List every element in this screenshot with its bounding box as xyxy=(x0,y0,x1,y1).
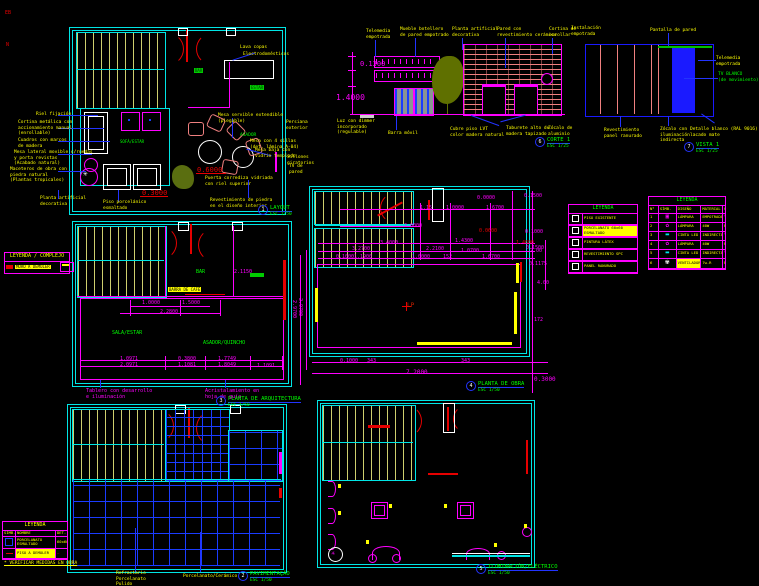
legend-row: 2 ✿ LÁMPARA 40W Pz xyxy=(649,223,725,232)
dimension-label: 4.00 xyxy=(537,280,549,286)
title-number-badge: 7 xyxy=(684,142,694,152)
door-frame xyxy=(226,28,236,36)
annotation-label: Taburete alto de madera tapizado xyxy=(506,126,549,137)
dimension-label: 1.0700 xyxy=(461,248,479,254)
annotation-label: Telemedia empotrada xyxy=(716,56,740,67)
symbol-icon: ✾ xyxy=(658,259,676,269)
title-scale: ESC 1/25 xyxy=(696,149,719,154)
annotation-label: Porcelanato/Cerámico xyxy=(183,574,237,580)
legend-row: 3 ▬ CINTA LED INDIRECTA ╲ xyxy=(649,232,725,241)
legend-label: PINTURA LÁTEX xyxy=(582,238,637,249)
legend-title: LEYENDA xyxy=(649,197,725,206)
annotation-label: Detalle blanco (RAL 9016) lacado mate xyxy=(690,127,758,138)
side-table xyxy=(121,112,140,131)
led-strip xyxy=(452,555,530,557)
panel-joint xyxy=(617,45,618,114)
leader-line xyxy=(415,38,416,57)
dimension-label: 2.00 xyxy=(530,248,542,254)
legend-title: LEYENDA xyxy=(3,522,67,531)
dimension-label: BAR xyxy=(196,269,205,275)
stool-seat xyxy=(137,168,157,186)
legend-label: MURO A DEMOLER xyxy=(15,265,51,270)
dim-line xyxy=(512,191,513,260)
dim-line xyxy=(130,300,131,316)
annotation-label: Cortina metálica con accionamiento manua… xyxy=(18,120,72,137)
dimension-label: 0.0000 xyxy=(477,195,495,201)
annotation-label: Lava copas xyxy=(240,45,267,51)
tree xyxy=(432,56,464,104)
panel-joint xyxy=(651,45,652,114)
annotation-label: Mesa servible extendible (plegable) xyxy=(218,113,283,124)
dimension-label: 2.0000 xyxy=(404,223,422,229)
legend-row: MURO A DEMOLER xyxy=(5,262,69,273)
floor-detail xyxy=(360,115,374,118)
annotation-label: Refractario Porcelanato Pulido xyxy=(116,571,146,586)
legend-small-table: LEYENDA PISO EXISTENTE PORCELANATO 60x60… xyxy=(568,204,638,274)
dimension-label: 1.8049 xyxy=(218,362,236,368)
wall-strip xyxy=(514,292,517,334)
dimension-label: 343 xyxy=(461,358,470,364)
legend-swatch xyxy=(3,537,15,549)
legend-swatch xyxy=(569,226,582,237)
switch-dot xyxy=(366,540,369,544)
counter xyxy=(224,60,274,79)
dimension-label: 0.3000 xyxy=(534,376,556,383)
green-marker xyxy=(250,273,264,277)
sconce-icon xyxy=(328,481,336,497)
dim-line xyxy=(80,356,81,370)
annotation-label: Cubre piso LVT color madera natural xyxy=(450,127,504,138)
door-frame xyxy=(432,188,444,222)
dim-line xyxy=(306,250,307,370)
title-scale: ESC 1/50 xyxy=(228,403,301,408)
bar-cabinet xyxy=(394,88,414,116)
annotation-label: Pared con revestimiento cerámico xyxy=(497,27,557,38)
dimension-label: 1.6700 xyxy=(486,205,504,211)
tv-panel xyxy=(672,48,695,113)
round-table xyxy=(198,140,222,164)
col-header: SÍMB. xyxy=(658,206,676,214)
dim-line xyxy=(420,203,421,260)
leader-line xyxy=(396,116,397,130)
switch-dot xyxy=(494,543,497,547)
annotation-label: Persiana exterior xyxy=(286,120,308,131)
legend-label: PISO EXISTENTE xyxy=(582,214,637,225)
annotation-label: Cuadros con marcos de madera xyxy=(18,138,67,149)
dimension-label: 0.1500 xyxy=(524,193,542,199)
inner-wall xyxy=(233,226,234,296)
title-scale: ESC 1/50 xyxy=(250,578,290,583)
symbol-icon: ▣ xyxy=(658,214,676,223)
dim-tick xyxy=(348,56,356,57)
dimension-label: 0.1175 xyxy=(529,261,547,267)
stair-landing-line xyxy=(323,442,413,443)
legend-row: PISO A DEMOLER — xyxy=(3,549,67,559)
speaker-arc-icon xyxy=(466,548,490,560)
symbol-icon: ▬ xyxy=(658,250,676,259)
tiled-area xyxy=(73,480,280,566)
door-leaf xyxy=(447,407,449,431)
leader-line xyxy=(668,33,669,46)
annotation-label: Barra móvil xyxy=(388,131,418,137)
floor-line xyxy=(72,479,281,480)
drawing-title-iluminacion: 5 ILUMINACIÓN/ELÉCTRICOESC 1/50 xyxy=(476,564,558,577)
legend-label: PORCELANATO 60x60 ESMALTADO xyxy=(582,226,637,237)
stair-landing-line xyxy=(73,444,164,445)
tiled-area xyxy=(228,430,283,482)
dimension-label: SALA/ESTAR xyxy=(112,330,142,336)
led-strip xyxy=(452,553,530,554)
counter-line xyxy=(185,294,225,295)
dim-line xyxy=(220,300,221,316)
wall-mark xyxy=(279,452,282,474)
dimension-label: 7.2000 xyxy=(406,369,428,376)
legend-row: 1 ▣ LÁMPARA EMPOTRADA ╲ xyxy=(649,214,725,223)
annotation-label: Mesa lateral movible c/ruedas y porta re… xyxy=(14,150,93,167)
switch-dot xyxy=(338,511,341,515)
title-number-badge: 2 xyxy=(238,571,248,581)
dimension-label: 0.1000 xyxy=(340,358,358,364)
stair-landing-line xyxy=(78,260,164,261)
switch-dot xyxy=(338,484,341,488)
door-arc-icon xyxy=(453,405,481,433)
dim-line xyxy=(352,52,353,115)
annotation-label: SOFÁ/ESTAR xyxy=(120,139,144,144)
sconce-icon xyxy=(328,508,336,524)
door-arc-icon xyxy=(143,226,177,260)
legend-swatch xyxy=(569,238,582,249)
legend-row: PISO EXISTENTE xyxy=(569,214,637,226)
wall-highlight xyxy=(279,488,282,498)
drawing-title-pavimentacao: 2 PAVIMENTAÇÃOESC 1/50 xyxy=(238,571,290,584)
inner-wall xyxy=(77,296,285,297)
title-scale: ESC 1/25 xyxy=(547,144,570,149)
dimension-label: 1.0000 xyxy=(412,254,430,260)
door-arc-icon xyxy=(148,32,184,66)
legend-label: — xyxy=(55,549,67,559)
switch-dot xyxy=(389,504,392,508)
dimension-label: BARRA DE CAFÉ xyxy=(168,287,201,292)
chair xyxy=(188,122,204,136)
leader-line xyxy=(135,528,136,572)
annotation-label: Electrodomésticos xyxy=(243,52,289,58)
dimension-label: 1.15 xyxy=(420,205,432,211)
dimension-label: 2.2100 xyxy=(426,246,444,252)
legend-complejo-box: LEYENDA / COMPLEJO MURO A DEMOLER xyxy=(4,252,70,274)
leader-line xyxy=(668,116,669,126)
annotation-label: 0.3000 xyxy=(142,189,167,198)
plant xyxy=(172,165,194,189)
col-header: CANT. xyxy=(722,206,725,214)
leader-line xyxy=(462,38,463,50)
dimension-label: 1.0000 xyxy=(142,300,160,306)
dimension-label: 0.0600 xyxy=(479,228,497,234)
annotation-label: TV BLANCO (de movimiento) xyxy=(718,72,759,83)
annotation-label: Luz con dimmer incorporado (regulable) xyxy=(337,119,375,136)
legend-header-row: N° SÍMB. DISEÑO MATERIAL CANT. xyxy=(649,206,725,214)
dim-line xyxy=(450,203,451,260)
pendant-light-icon xyxy=(541,73,553,85)
bar-stool xyxy=(514,84,538,116)
bottles xyxy=(376,73,436,78)
wall-highlight xyxy=(428,473,458,475)
title-scale: ESC 1/50 xyxy=(478,388,524,393)
dimension-label: LP xyxy=(407,302,414,309)
legend-floor-table: LEYENDA SÍMB. NOMBRE DET. PORCELANATO ES… xyxy=(2,521,68,560)
drawing-title-obra: 4 PLANTA DE OBRAESC 1/50 xyxy=(466,381,524,394)
door-arc-icon xyxy=(390,405,422,437)
legend-swatch xyxy=(3,549,15,559)
annotation-label: 0.6000 xyxy=(197,166,222,175)
recessed-light-icon xyxy=(460,505,471,516)
speaker-icon xyxy=(392,554,401,563)
stool-seat xyxy=(107,168,127,186)
legend-label: REVESTIMIENTO SPC xyxy=(582,250,637,261)
tree-trunk xyxy=(447,102,448,114)
leader-line xyxy=(620,116,621,127)
corner-mark: EB xyxy=(5,10,11,16)
recessed-light-icon xyxy=(374,505,385,516)
dimension-label: 1.5000 xyxy=(182,300,200,306)
annotation-label: ASADOR xyxy=(240,133,256,139)
leader-line xyxy=(684,78,718,79)
legend-swatch xyxy=(569,250,582,261)
leader-line xyxy=(552,38,553,54)
panel-joint xyxy=(658,45,659,114)
title-number-badge: 5 xyxy=(476,564,486,574)
annotation-label: Revestimiento panel ranurado xyxy=(604,128,642,139)
leader-line xyxy=(375,40,376,57)
legend-row: PINTURA LÁTEX xyxy=(569,238,637,250)
annotation-label: ESTAR xyxy=(250,85,264,90)
switch-dot xyxy=(444,504,447,508)
stair-landing-line xyxy=(77,69,164,70)
legend-label: PISO A DEMOLER xyxy=(15,549,55,559)
wall-strip xyxy=(315,288,318,322)
annotation-label: Piso porcelánico esmaltado xyxy=(103,200,146,211)
dimension-label: 2.1150 xyxy=(234,269,252,275)
drawing-title-corte: 6 CORTE 1ESC 1/25 xyxy=(535,137,570,150)
annotation-label: BAR xyxy=(194,68,203,73)
wall-highlight xyxy=(283,260,286,320)
switch-dot xyxy=(524,524,527,528)
legend-swatch xyxy=(6,265,13,269)
dimension-label: 1.0000 xyxy=(446,205,464,211)
leader-line xyxy=(698,60,716,61)
dim-tick xyxy=(348,86,356,87)
legend-label: PORCELANATO ESMALTADO xyxy=(15,537,55,549)
wall-strip xyxy=(417,342,512,345)
annotation-label: Maceteros de obra con piedra natural (Pl… xyxy=(10,167,67,184)
cad-drawing-canvas[interactable]: ✳ xyxy=(0,0,759,586)
legend-row: PORCELANATO 60x60 ESMALTADO xyxy=(569,226,637,238)
legend-row: PANEL RANURADO xyxy=(569,262,637,273)
door-frame xyxy=(178,28,188,36)
dim-line xyxy=(180,300,181,316)
sofa-cushion xyxy=(88,116,104,150)
dimension-label: 1.1081 xyxy=(178,362,196,368)
leader-line xyxy=(100,380,101,388)
door-leaf xyxy=(368,425,390,428)
col-header: MATERIAL xyxy=(700,206,722,214)
corner-mark: N xyxy=(6,42,9,48)
dimension-label: 2.0971 xyxy=(120,362,138,368)
door-arc-icon xyxy=(380,192,414,224)
speaker-icon xyxy=(368,554,377,563)
dimension-label: 2.2800 xyxy=(160,309,178,315)
bar-cabinet xyxy=(414,88,434,116)
dimension-label: ASADOR/QUINCHO xyxy=(203,340,245,346)
symbol-icon: ✿ xyxy=(658,241,676,250)
title-number-badge: 6 xyxy=(535,137,545,147)
dim-line xyxy=(130,306,210,307)
legend-row: 6 ✾ VENTILADOR 7w-R Pz xyxy=(649,259,725,269)
dimension-label: Tablero con desarrollo e iluminación xyxy=(86,388,152,400)
fan-blades-icon: ✳ xyxy=(331,549,335,557)
title-scale: ESC 1/50 xyxy=(488,571,558,576)
drawing-title-arquitectura: 3 PLANTA DE ARQUITECTURAESC 1/50 xyxy=(216,396,301,409)
dimension-label: 1.4300 xyxy=(455,238,473,244)
annotation-label: Mueble botellero de pared empotrado xyxy=(400,27,449,38)
dimension-label: 152 xyxy=(443,254,452,260)
inner-wall xyxy=(165,226,166,296)
floor-line xyxy=(350,114,565,115)
leader-line xyxy=(200,532,201,572)
annotation-label: Instalación empotrada xyxy=(571,26,601,37)
col-header: N° xyxy=(649,206,658,214)
wall-highlight xyxy=(526,440,528,474)
door-frame xyxy=(178,222,189,231)
door-leaf xyxy=(190,224,192,254)
dim-line xyxy=(282,356,283,370)
annotation-label: 1.4000 xyxy=(336,93,365,103)
title-number-badge: 3 xyxy=(216,396,226,406)
dimension-label: 0.1000 xyxy=(525,229,543,235)
dimension-label: 1.1091 xyxy=(257,363,275,369)
legend-title: LEYENDA / COMPLEJO xyxy=(5,253,69,262)
title-scale: ESC 1/50 xyxy=(270,212,292,217)
dimension-label: 343 xyxy=(367,358,376,364)
bar-wall-line xyxy=(229,62,230,107)
annotation-label: Telemedia empotrada xyxy=(366,29,390,40)
dimension-label: 0.1000 xyxy=(336,254,354,260)
legend-big-table: LEYENDA N° SÍMB. DISEÑO MATERIAL CANT. 1… xyxy=(648,196,726,270)
annotation-label: Zócalo de aluminio xyxy=(548,126,572,137)
dim-tick xyxy=(348,70,356,71)
leader-line xyxy=(505,38,506,68)
annotation-label: 0.1300 xyxy=(360,60,385,69)
legend-swatch xyxy=(569,262,582,273)
dim-line xyxy=(165,356,166,370)
dim-line xyxy=(340,209,535,210)
legend-note: * VERIFICAR MEDIDAS EN OBRA xyxy=(4,561,77,567)
symbol-icon: ✿ xyxy=(658,223,676,232)
wall-strip xyxy=(516,263,519,283)
annotation-label: Riel fijación xyxy=(36,112,71,118)
dimension-label: 1.1900 xyxy=(354,254,372,260)
legend-row: 5 ▬ CINTA LED INDIRECTA ╲ xyxy=(649,250,725,259)
dimension-label: 2.9700 xyxy=(297,298,303,316)
leader-line xyxy=(471,115,500,126)
symbol-icon: ▬ xyxy=(658,232,676,241)
dim-line xyxy=(250,356,251,370)
col-header: DISEÑO xyxy=(676,206,701,214)
legend-row: PORCELANATO ESMALTADO 60x60 xyxy=(3,537,67,549)
dimension-label: 172 xyxy=(534,317,543,323)
annotation-label: TV de pared xyxy=(289,164,303,175)
tiled-room xyxy=(165,409,230,482)
dim-line xyxy=(532,191,533,393)
drawing-title-layout: 1 LAYOUTESC 1/50 xyxy=(258,205,292,218)
title-number-badge: 4 xyxy=(466,381,476,391)
dimension-label: 1.6700 xyxy=(482,254,500,260)
annotation-label: Puerta corrediza vidriada con riel super… xyxy=(205,176,273,187)
legend-title: LEYENDA xyxy=(569,205,637,214)
dimension-label: 3.2700 xyxy=(352,246,370,252)
room-outline xyxy=(317,264,521,348)
dim-line xyxy=(205,356,206,370)
annotation-label: Pantalla de pared xyxy=(650,28,696,34)
side-table xyxy=(142,112,161,131)
panel-joint xyxy=(600,45,601,114)
drawing-title-vista: 7 VISTA 1ESC 1/25 xyxy=(684,142,719,155)
dim-line xyxy=(312,373,548,374)
door-frame xyxy=(443,403,455,433)
bar-stool xyxy=(482,84,506,116)
annotation-label: Planta artificial decorativa xyxy=(452,27,498,38)
leader-line xyxy=(225,380,226,388)
bar-wall-line xyxy=(188,107,230,108)
wall-highlight xyxy=(520,262,522,282)
annotation-label: Planta artificial decorativa xyxy=(40,196,86,207)
legend-row: REVESTIMIENTO SPC xyxy=(569,250,637,262)
legend-row: 4 ✿ LÁMPARA 40W Pz xyxy=(649,241,725,250)
table-mark xyxy=(128,119,130,121)
ceiling-fixture-icon xyxy=(522,527,532,537)
dimension-label: 3.4000 xyxy=(380,240,398,246)
title-number-badge: 1 xyxy=(258,205,268,215)
door-arc-icon xyxy=(198,228,232,262)
dim-line xyxy=(300,255,301,385)
panel-joint xyxy=(634,45,635,114)
legend-label: PANEL RANURADO xyxy=(582,262,637,273)
legend-swatch xyxy=(569,214,582,225)
dim-line xyxy=(318,243,535,244)
legend-label: 60x60 xyxy=(55,537,67,549)
table-mark xyxy=(149,119,151,121)
